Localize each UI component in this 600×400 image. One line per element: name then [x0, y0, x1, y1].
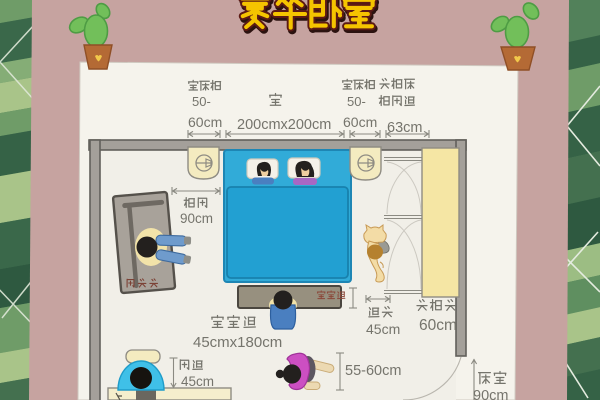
svg-text:90cm: 90cm — [180, 211, 213, 226]
svg-text:90cm: 90cm — [473, 388, 508, 400]
svg-text:45cm: 45cm — [181, 374, 214, 389]
svg-text:55-60cm: 55-60cm — [345, 363, 401, 379]
svg-text:60cm: 60cm — [188, 114, 222, 130]
svg-text:45cm: 45cm — [366, 321, 400, 337]
svg-text:50-: 50- — [192, 94, 211, 109]
svg-text:60cm: 60cm — [343, 114, 377, 130]
svg-text:60cm: 60cm — [419, 317, 457, 334]
svg-text:200cmx200cm: 200cmx200cm — [237, 117, 331, 133]
svg-text:50-: 50- — [347, 94, 366, 109]
svg-text:45cmx180cm: 45cmx180cm — [193, 334, 282, 351]
svg-text:63cm: 63cm — [387, 120, 422, 136]
